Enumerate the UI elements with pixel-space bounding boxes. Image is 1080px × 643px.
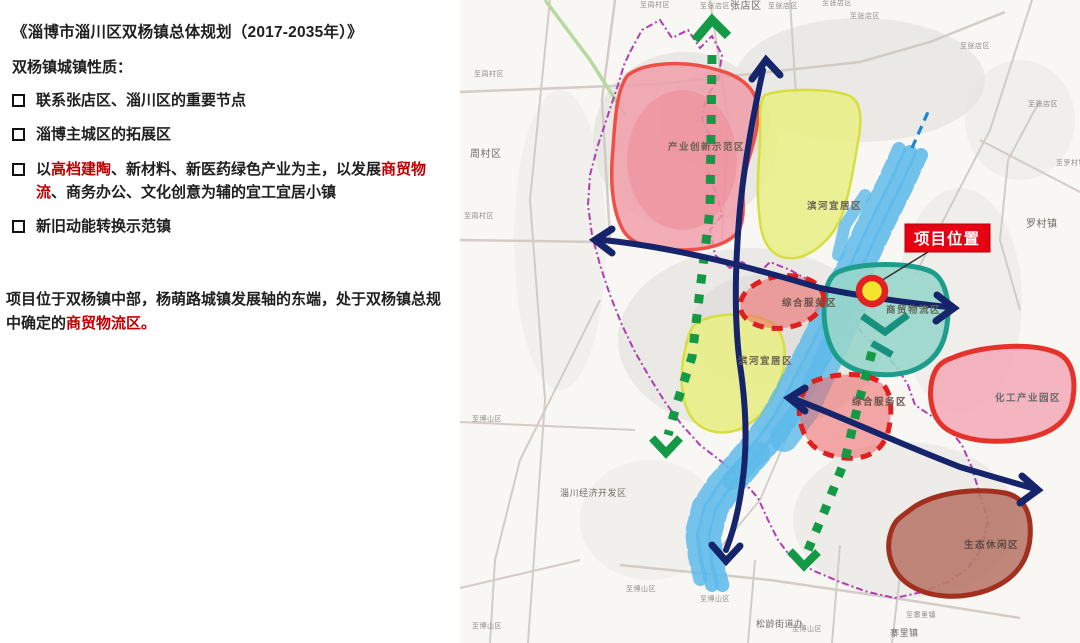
bullet-square-icon [12, 220, 25, 233]
bullet-item: 联系张店区、淄川区的重要节点 [12, 89, 456, 112]
map-label: 滨河宜居区 [738, 355, 793, 367]
map-label: 至张店区 [1028, 99, 1058, 108]
text-segment: 、新材料、新医药绿色产业为主，以发展 [111, 161, 381, 178]
map-label: 淄川经济开发区 [560, 487, 627, 498]
map-label: 至博山区 [700, 594, 730, 603]
map-label: 至博山区 [472, 414, 502, 423]
map-label: 商贸物流区 [886, 304, 941, 316]
bullet-item: 淄博主城区的拓展区 [12, 123, 456, 146]
map-label: 至寨里镇 [906, 610, 936, 619]
planning-map-svg: 项目位置 产业创新示范区滨河宜居区商贸物流区综合服务区综合服务区滨河宜居区化工产… [460, 0, 1080, 643]
planning-map: 项目位置 产业创新示范区滨河宜居区商贸物流区综合服务区综合服务区滨河宜居区化工产… [460, 0, 1080, 643]
text-segment: 、商务办公、文化创意为辅的宜工宜居小镇 [51, 184, 336, 201]
text-segment: 联系张店区、淄川区的重要节点 [36, 92, 246, 109]
plan-title: 《淄博市淄川区双杨镇总体规划（2017-2035年）》 [12, 20, 452, 42]
map-label: 罗村镇 [1026, 217, 1058, 230]
zone-industry-innovation-core [627, 90, 737, 230]
map-label: 综合服务区 [782, 297, 837, 309]
map-label: 滨河宜居区 [807, 200, 862, 212]
plan-subtitle: 双杨镇城镇性质： [12, 56, 452, 77]
project-location-paragraph: 项目位于双杨镇中部，杨萌路城镇发展轴的东端，处于双杨镇总规中确定的商贸物流区。 [6, 288, 454, 335]
zone-commerce-logistics [824, 265, 948, 375]
text-segment: 商贸物流区。 [66, 315, 156, 332]
slide: 《淄博市淄川区双杨镇总体规划（2017-2035年）》 双杨镇城镇性质： 联系张… [0, 0, 1080, 643]
map-label: 至博山区 [472, 621, 502, 630]
bullet-item: 以高档建陶、新材料、新医药绿色产业为主，以发展商贸物流、商务办公、文化创意为辅的… [12, 158, 456, 205]
bullet-text: 淄博主城区的拓展区 [36, 123, 171, 146]
text-segment: 新旧动能转换示范镇 [36, 218, 171, 235]
text-segment: 高档建陶 [51, 161, 111, 178]
map-label: 至张店区 [822, 0, 852, 7]
map-label: 张店区 [730, 0, 762, 12]
map-label: 综合服务区 [852, 396, 907, 408]
bullet-square-icon [12, 94, 25, 107]
map-label: 至张店区 [850, 11, 880, 20]
map-label: 产业创新示范区 [668, 141, 745, 153]
map-label: 至周村区 [640, 0, 670, 9]
map-label: 至张店区 [768, 1, 798, 10]
map-label: 至博山区 [626, 584, 656, 593]
map-label: 至周村区 [464, 211, 494, 220]
bullet-item: 新旧动能转换示范镇 [12, 215, 456, 238]
map-label: 化工产业园区 [995, 392, 1061, 404]
bullet-square-icon [12, 128, 25, 141]
bullet-square-icon [12, 163, 25, 176]
bullet-list: 联系张店区、淄川区的重要节点淄博主城区的拓展区以高档建陶、新材料、新医药绿色产业… [12, 89, 456, 238]
bullet-text: 联系张店区、淄川区的重要节点 [36, 89, 246, 112]
map-label: 至博山区 [792, 624, 822, 633]
project-location-flag-label: 项目位置 [914, 229, 980, 248]
text-panel: 《淄博市淄川区双杨镇总体规划（2017-2035年）》 双杨镇城镇性质： 联系张… [0, 0, 462, 643]
map-label: 生态休闲区 [964, 539, 1019, 551]
text-segment: 淄博主城区的拓展区 [36, 126, 171, 143]
project-location-flag: 项目位置 [905, 224, 990, 252]
text-segment: 以 [36, 161, 51, 178]
bullet-text: 以高档建陶、新材料、新医药绿色产业为主，以发展商贸物流、商务办公、文化创意为辅的… [36, 158, 456, 205]
map-label: 周村区 [470, 147, 502, 160]
map-label: 至张店区 [960, 41, 990, 50]
bullet-text: 新旧动能转换示范镇 [36, 215, 171, 238]
map-label: 寨里镇 [890, 627, 919, 638]
map-label: 至张店区 [700, 1, 730, 10]
map-label: 至罗村镇 [1056, 158, 1080, 167]
map-label: 至周村区 [474, 69, 504, 78]
